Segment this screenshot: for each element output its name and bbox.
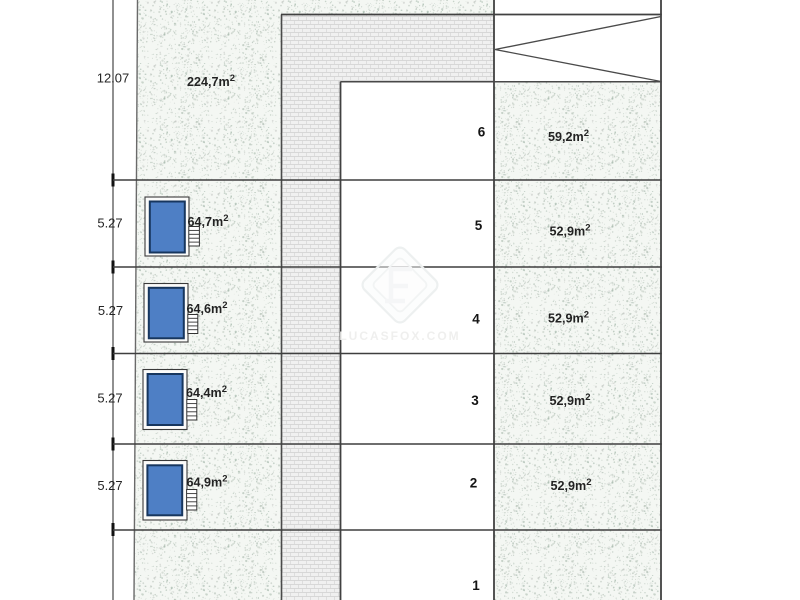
svg-text:52,9m2: 52,9m2 — [550, 477, 591, 493]
svg-text:5: 5 — [475, 218, 483, 233]
svg-text:12.07: 12.07 — [97, 71, 130, 86]
svg-text:64,7m2: 64,7m2 — [187, 213, 228, 229]
svg-text:64,4m2: 64,4m2 — [186, 384, 227, 400]
svg-text:5.27: 5.27 — [97, 216, 122, 231]
svg-text:5.27: 5.27 — [97, 478, 122, 493]
svg-text:3: 3 — [471, 393, 479, 408]
svg-text:59,2m2: 59,2m2 — [548, 128, 589, 144]
svg-text:5.27: 5.27 — [98, 303, 123, 318]
svg-text:52,9m2: 52,9m2 — [549, 223, 590, 239]
svg-text:5.27: 5.27 — [97, 391, 122, 406]
svg-text:64,6m2: 64,6m2 — [186, 300, 227, 316]
svg-text:1: 1 — [472, 578, 480, 593]
svg-text:2: 2 — [470, 476, 478, 491]
svg-text:52,9m2: 52,9m2 — [549, 392, 590, 408]
svg-text:64,9m2: 64,9m2 — [186, 474, 227, 490]
svg-text:4: 4 — [472, 312, 480, 327]
svg-text:224,7m2: 224,7m2 — [187, 73, 235, 89]
svg-text:52,9m2: 52,9m2 — [548, 310, 589, 326]
svg-text:6: 6 — [478, 125, 486, 140]
svg-text:LUCASFOX.COM: LUCASFOX.COM — [339, 329, 460, 343]
